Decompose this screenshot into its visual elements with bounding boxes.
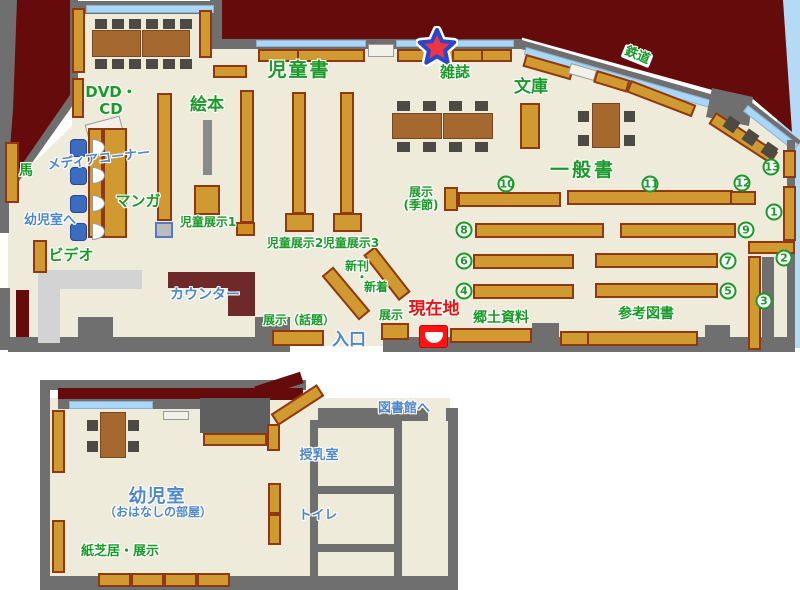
bookshelf bbox=[52, 410, 65, 473]
label-jidou-tenji1: 児童展示1 bbox=[180, 216, 236, 229]
section-label-dvd-cd: DVD・ CD bbox=[85, 84, 137, 117]
label-toire: トイレ bbox=[298, 509, 337, 523]
bookshelf bbox=[131, 573, 164, 587]
shelf-number-6: 6 bbox=[456, 253, 473, 270]
table bbox=[392, 113, 442, 139]
library-floor-map: DVD・ CD 絵本 児童書 雑誌 文庫 鉄道 一般書 展示 (季節) メディア… bbox=[0, 0, 800, 590]
media-carrel-desk bbox=[103, 128, 127, 238]
shelf-number-1: 1 bbox=[766, 204, 783, 221]
label-shinchaku: 新着 bbox=[364, 281, 388, 294]
chair bbox=[95, 19, 107, 29]
shelf-number-12: 12 bbox=[734, 175, 751, 192]
display-table bbox=[381, 323, 409, 340]
label-ohanashi-no-heya: （おはなしの部屋） bbox=[104, 506, 212, 519]
chair bbox=[146, 19, 158, 29]
label-kamishibai-tenji: 紙芝居・展示 bbox=[81, 545, 159, 559]
chair bbox=[128, 441, 139, 452]
label-genzaichi: 現在地 bbox=[409, 300, 460, 319]
bookshelf bbox=[595, 253, 718, 268]
display-table bbox=[236, 222, 255, 236]
bookshelf bbox=[292, 92, 306, 214]
bookshelf bbox=[473, 284, 574, 299]
chair bbox=[112, 59, 124, 69]
display-table bbox=[444, 187, 458, 211]
chair bbox=[87, 420, 98, 431]
chair bbox=[163, 19, 175, 29]
chair bbox=[578, 111, 589, 122]
bookshelf bbox=[5, 142, 19, 203]
bookshelf bbox=[520, 103, 540, 149]
label-kyoudo-shiryou: 郷土資料 bbox=[473, 311, 529, 326]
wall-pillar bbox=[78, 317, 113, 352]
bookshelf bbox=[783, 186, 796, 241]
bookshelf bbox=[620, 223, 736, 238]
table bbox=[100, 412, 126, 458]
chair bbox=[397, 142, 410, 152]
staff-area bbox=[38, 270, 60, 343]
chair bbox=[449, 142, 462, 152]
bookshelf bbox=[481, 49, 512, 62]
label-jidou-tenji2: 児童展示2 bbox=[267, 237, 323, 250]
bookshelf bbox=[268, 514, 281, 545]
bookshelf bbox=[783, 150, 796, 178]
chair bbox=[475, 101, 488, 111]
chair bbox=[475, 142, 488, 152]
label-jidou-tenji3: 児童展示3 bbox=[323, 237, 379, 250]
doorway bbox=[428, 398, 446, 421]
label-iriguchi: 入口 bbox=[332, 331, 366, 350]
chair bbox=[423, 101, 436, 111]
bookshelf bbox=[72, 8, 85, 73]
label-youjishitsu: 幼児室 bbox=[129, 487, 186, 507]
window bbox=[256, 40, 366, 47]
wall bbox=[40, 380, 50, 588]
exterior-block bbox=[222, 0, 522, 42]
chair bbox=[128, 420, 139, 431]
shelf-number-2: 2 bbox=[776, 250, 793, 267]
display-table bbox=[194, 185, 220, 215]
chair bbox=[95, 59, 107, 69]
bookshelf bbox=[52, 520, 65, 573]
bookshelf bbox=[730, 191, 756, 205]
chair bbox=[397, 101, 410, 111]
section-label-bunko: 文庫 bbox=[514, 78, 548, 97]
bookshelf bbox=[450, 328, 532, 343]
service-counter bbox=[168, 272, 230, 288]
window bbox=[86, 5, 214, 13]
wall bbox=[310, 486, 402, 494]
shelf-number-9: 9 bbox=[738, 222, 755, 239]
display-table bbox=[285, 213, 314, 232]
shelf-number-11: 11 bbox=[642, 176, 659, 193]
label-toshokan-he: 図書館へ bbox=[378, 402, 430, 416]
chair bbox=[129, 19, 141, 29]
wall-pillar bbox=[532, 323, 559, 342]
chair bbox=[624, 111, 635, 122]
chair bbox=[180, 59, 192, 69]
label-junyuushitsu: 授乳室 bbox=[299, 449, 338, 463]
chair bbox=[578, 135, 589, 146]
chair bbox=[163, 59, 175, 69]
shelf-number-5: 5 bbox=[720, 283, 737, 300]
bookshelf bbox=[98, 573, 131, 587]
table bbox=[142, 30, 190, 57]
stairwell bbox=[200, 398, 270, 433]
table bbox=[592, 103, 620, 148]
bookshelf bbox=[267, 424, 280, 451]
bookshelf bbox=[240, 90, 254, 223]
kiosk-terminal bbox=[155, 222, 173, 238]
window bbox=[69, 401, 153, 409]
display-stand bbox=[203, 120, 212, 175]
section-label-uma: 馬 bbox=[19, 164, 33, 179]
section-label-zasshi: 雑誌 bbox=[440, 64, 470, 81]
label-tenji: 展示 bbox=[379, 309, 403, 322]
bookshelf bbox=[458, 192, 561, 207]
star-icon bbox=[416, 26, 458, 68]
bookshelf bbox=[587, 331, 698, 346]
section-label-jidousho: 児童書 bbox=[267, 60, 330, 81]
bookshelf bbox=[33, 240, 47, 273]
bookshelf bbox=[595, 283, 718, 298]
section-label-video: ビデオ bbox=[48, 247, 93, 264]
shelf-number-8: 8 bbox=[456, 222, 473, 239]
display-table bbox=[272, 330, 324, 346]
chair bbox=[180, 19, 192, 29]
wall bbox=[310, 544, 402, 552]
shelf-number-13: 13 bbox=[763, 159, 780, 176]
section-label-tenji-kisetsu: 展示 (季節) bbox=[404, 186, 439, 212]
current-location-marker bbox=[419, 325, 448, 348]
wall bbox=[394, 420, 402, 582]
shelf-number-3: 3 bbox=[756, 293, 773, 310]
label-tenji-wadai: 展示（話題） bbox=[263, 314, 335, 327]
chair bbox=[87, 441, 98, 452]
shelf-number-7: 7 bbox=[720, 253, 737, 270]
wall bbox=[310, 420, 402, 428]
chair bbox=[449, 101, 462, 111]
table bbox=[443, 113, 493, 139]
label-youjishitsu-he: 幼児室へ bbox=[24, 214, 76, 228]
chair bbox=[624, 135, 635, 146]
chair bbox=[423, 142, 436, 152]
bookshelf bbox=[164, 573, 197, 587]
shelf-number-10: 10 bbox=[498, 176, 515, 193]
label-counter: カウンター bbox=[170, 288, 240, 303]
wall bbox=[448, 414, 458, 588]
bookshelf bbox=[473, 254, 574, 269]
section-label-manga: マンガ bbox=[115, 193, 160, 210]
bookshelf bbox=[268, 483, 281, 514]
bookshelf bbox=[560, 331, 589, 346]
current-location-icon bbox=[425, 332, 443, 343]
bookshelf bbox=[72, 78, 84, 118]
bookshelf bbox=[475, 223, 604, 238]
chair bbox=[70, 195, 87, 213]
wall-pillar bbox=[705, 325, 730, 351]
table bbox=[92, 30, 141, 57]
wall bbox=[310, 420, 318, 582]
shelf-number-4: 4 bbox=[456, 283, 473, 300]
bookshelf bbox=[203, 433, 267, 446]
chair bbox=[129, 59, 141, 69]
door-panel bbox=[163, 411, 189, 420]
bookshelf bbox=[199, 10, 212, 58]
display-table bbox=[333, 213, 362, 232]
label-sankou-tosho: 参考図書 bbox=[618, 307, 674, 322]
door-panel bbox=[368, 44, 394, 57]
bookshelf bbox=[213, 65, 247, 78]
chair bbox=[112, 19, 124, 29]
bookshelf bbox=[197, 573, 230, 587]
section-label-ehon: 絵本 bbox=[190, 96, 224, 115]
bookshelf bbox=[340, 92, 354, 214]
chair bbox=[146, 59, 158, 69]
section-label-ippansho: 一般書 bbox=[550, 160, 616, 181]
